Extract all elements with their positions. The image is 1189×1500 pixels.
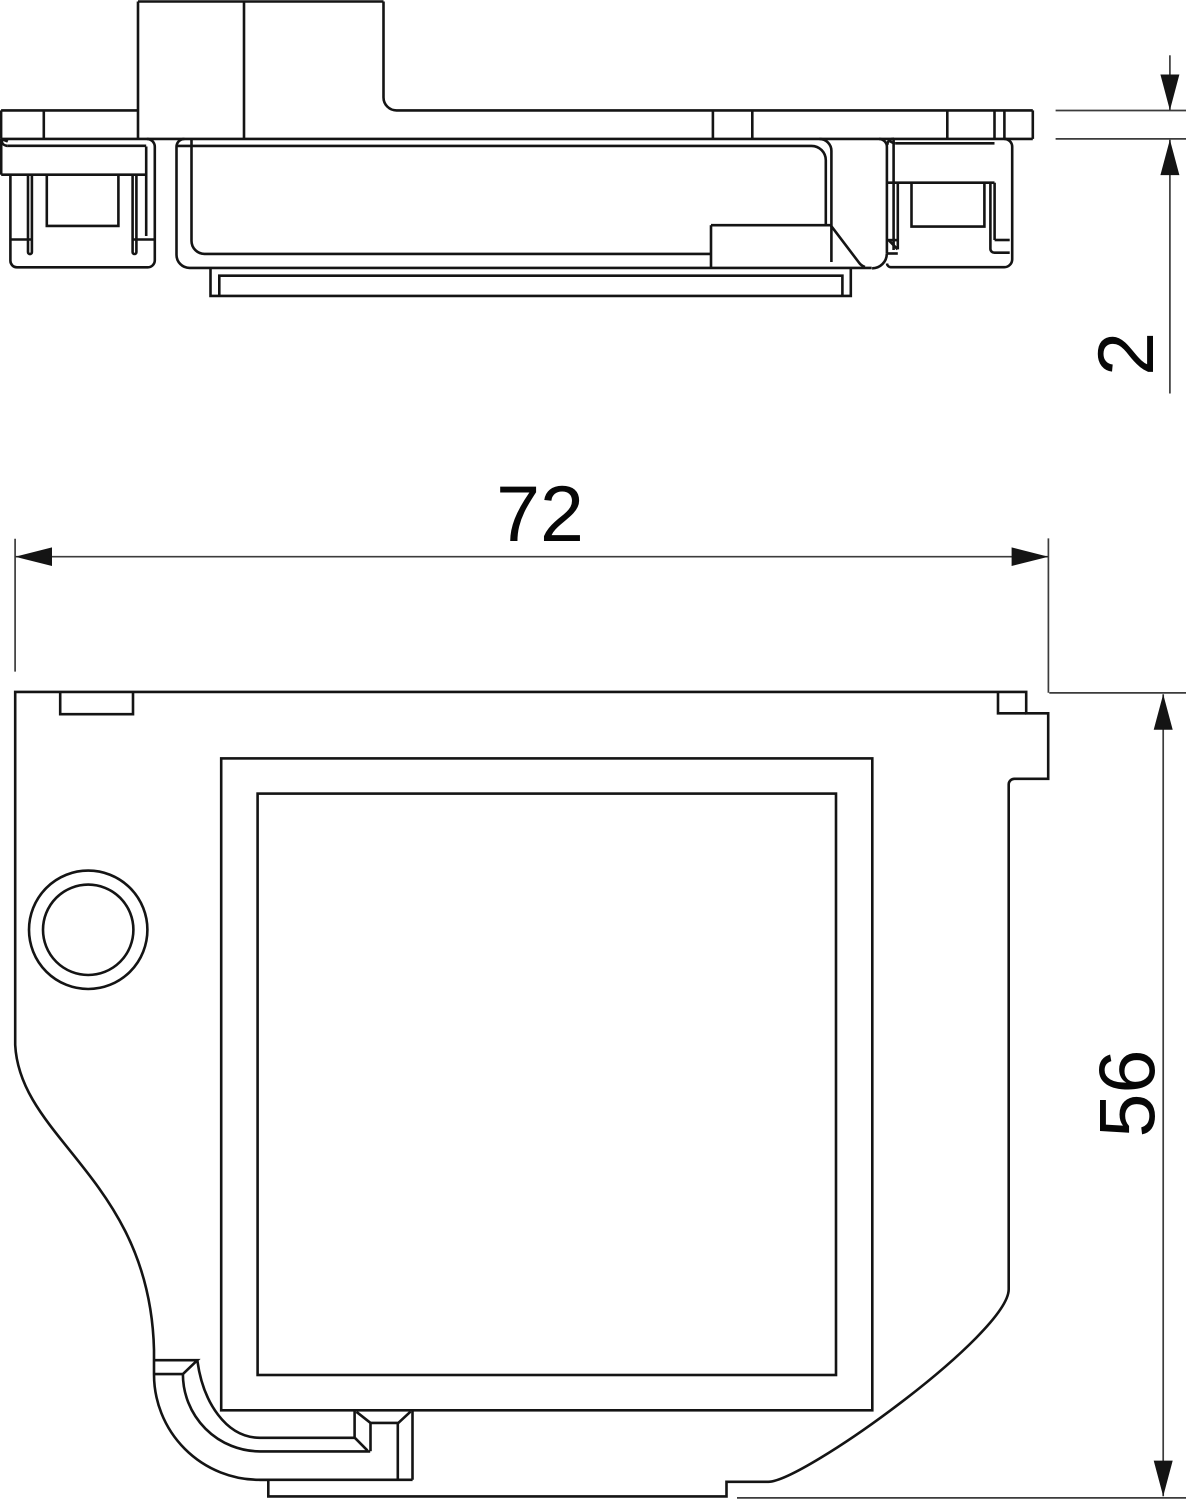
svg-text:56: 56 [1082,1050,1171,1138]
svg-text:72: 72 [496,469,584,558]
svg-text:2: 2 [1081,332,1170,376]
